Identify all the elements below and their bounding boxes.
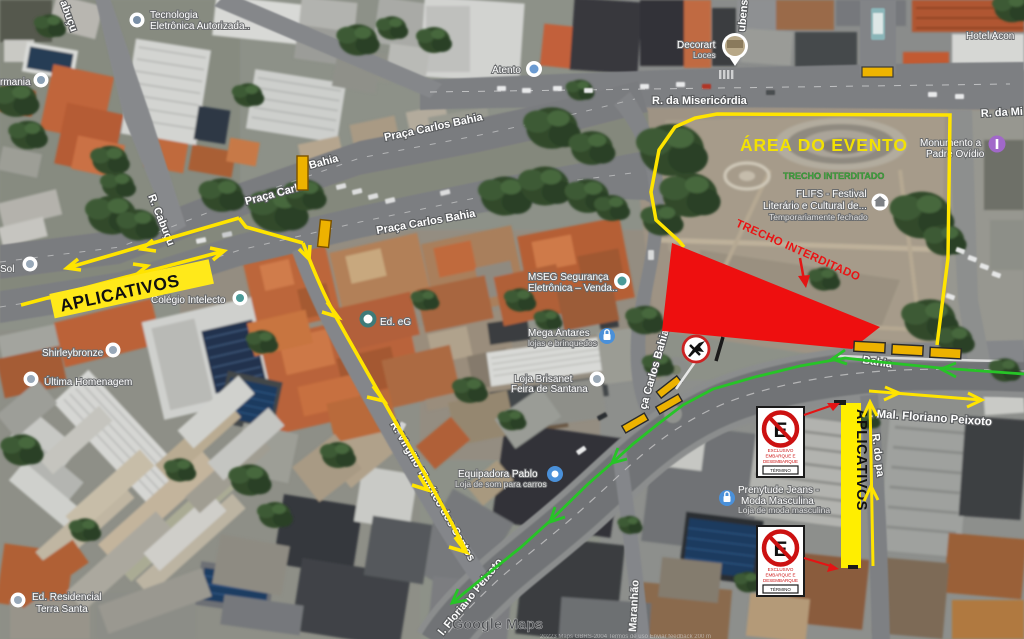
svg-text:MSEG Segurança: MSEG Segurança [528, 272, 609, 283]
svg-text:Atento: Atento [492, 65, 521, 76]
svg-text:Google Maps: Google Maps [452, 617, 543, 633]
svg-text:Última Homenagem: Última Homenagem [44, 375, 132, 388]
svg-text:ÁREA DO EVENTO: ÁREA DO EVENTO [740, 134, 908, 155]
svg-text:Ed. eG: Ed. eG [380, 317, 411, 328]
svg-text:Tecnologia: Tecnologia [150, 10, 198, 21]
svg-text:EMBARQUE E: EMBARQUE E [765, 454, 795, 459]
svg-text:R. da Mi: R. da Mi [981, 106, 1024, 120]
svg-text:Feira de Santana: Feira de Santana [511, 384, 588, 395]
svg-text:Shirleybronze: Shirleybronze [42, 348, 104, 359]
svg-text:EXCLUSIVO: EXCLUSIVO [768, 567, 794, 572]
svg-text:TÉRMINO: TÉRMINO [770, 586, 791, 592]
svg-text:R. da Misericórdia: R. da Misericórdia [652, 95, 748, 107]
svg-text:EMBARQUE E: EMBARQUE E [765, 573, 795, 578]
svg-text:rmania: rmania [0, 77, 31, 88]
svg-text:Prenytude Jeans -: Prenytude Jeans - [738, 485, 819, 496]
svg-text:Loces: Loces [693, 50, 716, 60]
svg-text:20223 Maps GBRS-2004 Termos d: 20223 Maps GBRS-2004 Termos de uso Envia… [540, 634, 711, 639]
svg-text:DESEMBARQUE: DESEMBARQUE [763, 578, 798, 583]
svg-text:EXCLUSIVO: EXCLUSIVO [768, 448, 794, 453]
svg-text:lojas e brinquedos: lojas e brinquedos [528, 338, 597, 348]
svg-text:Temporariamente fechado: Temporariamente fechado [769, 212, 868, 222]
svg-text:Literário e Cultural de...: Literário e Cultural de... [763, 201, 867, 212]
svg-text:FLIFS - Festival: FLIFS - Festival [796, 189, 867, 200]
svg-text:TRECHO INTERDITADO: TRECHO INTERDITADO [783, 171, 884, 181]
svg-text:Colégio Intelecto: Colégio Intelecto [151, 295, 226, 306]
svg-text:DESEMBARQUE: DESEMBARQUE [763, 459, 798, 464]
svg-text:Terra Santa: Terra Santa [36, 604, 88, 615]
svg-text:Ed. Residencial: Ed. Residencial [32, 592, 101, 603]
svg-text:Loja de moda masculina: Loja de moda masculina [738, 505, 830, 515]
svg-text:Padre Ovídio: Padre Ovídio [926, 149, 985, 160]
svg-text:Eletrônica Autorizada..: Eletrônica Autorizada.. [150, 21, 250, 32]
svg-text:TÉRMINO: TÉRMINO [770, 467, 791, 473]
svg-text:Hotel Acon: Hotel Acon [966, 31, 1014, 42]
svg-text:Loja de som para carros: Loja de som para carros [455, 479, 547, 489]
svg-text:Sol: Sol [0, 264, 14, 275]
svg-text:Eletrônica – Venda..: Eletrônica – Venda.. [528, 283, 618, 294]
